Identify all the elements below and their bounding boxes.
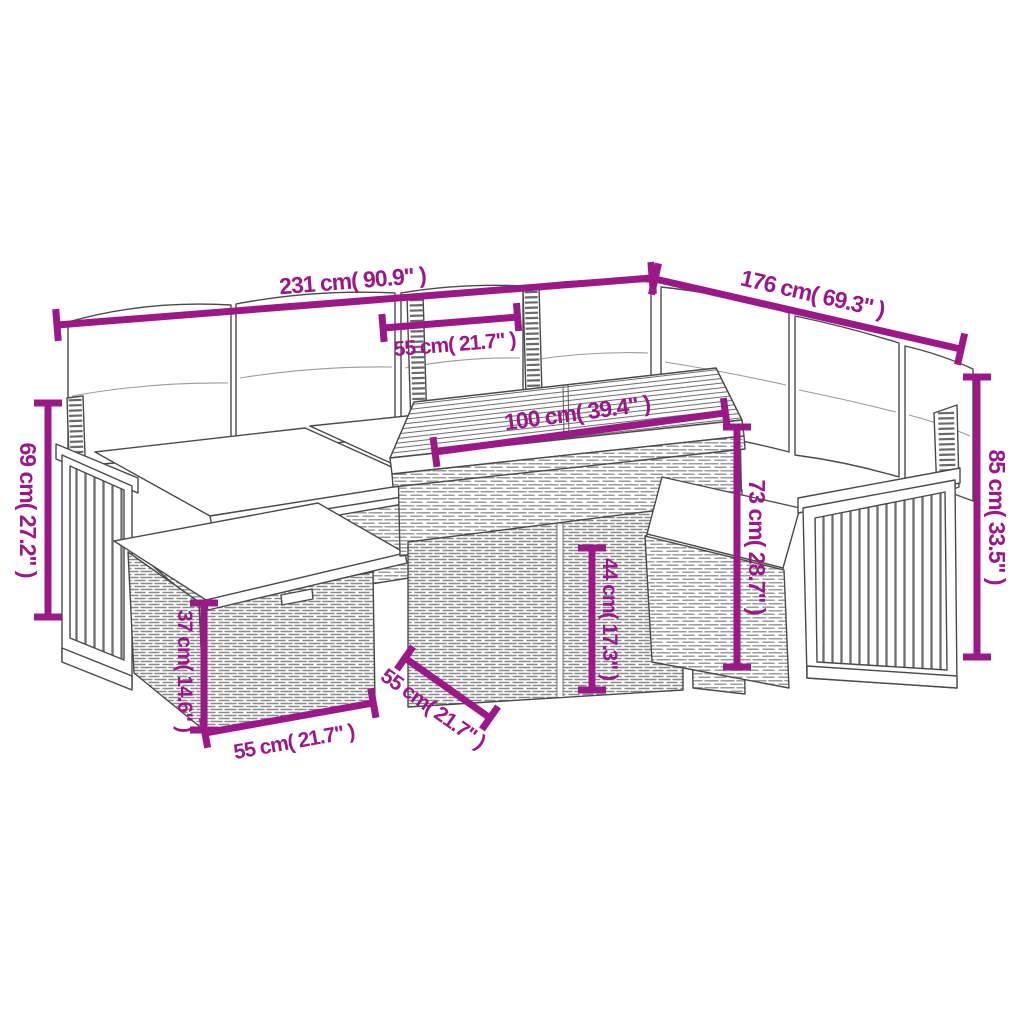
dimension-label: 85 cm( 33.5" ) (984, 450, 1010, 585)
dimension-cap (382, 314, 384, 342)
wicker-post (67, 396, 85, 458)
sofa-set-diagram-canvas: 231 cm( 90.9" ) 176 cm( 69.3" ) 55 cm( 2… (0, 0, 1024, 1024)
dimension-cap (723, 398, 727, 428)
dimension-cap (433, 437, 437, 467)
arm-wood-slats (70, 466, 124, 660)
ottoman (114, 503, 407, 731)
dimension-label: 73 cm( 28.7" ) (744, 480, 770, 615)
left-arm-panel (56, 444, 138, 690)
dimension-label: 37 cm( 14.6" ) (173, 610, 196, 732)
dimension-cap (56, 309, 59, 341)
storage-stool (408, 507, 683, 707)
back-cushion (795, 316, 899, 477)
dimension-diagram: 231 cm( 90.9" ) 176 cm( 69.3" ) 55 cm( 2… (0, 0, 1024, 1024)
dimension-label: 44 cm( 17.3" ) (598, 558, 621, 680)
stool-front-face (408, 507, 683, 707)
dimension-cap (516, 303, 518, 331)
dimension-label: 69 cm( 27.2" ) (15, 443, 41, 578)
dimension-cap (958, 334, 965, 365)
dim-left-back-height: 69 cm( 27.2" ) (15, 403, 62, 617)
arm-wood-slats (815, 492, 947, 670)
